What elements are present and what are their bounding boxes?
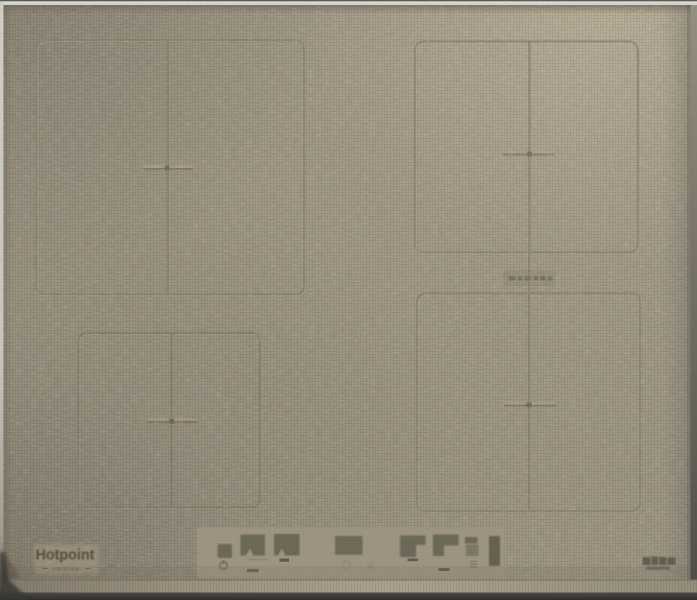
svg-text:Hotpoint: Hotpoint <box>36 548 95 564</box>
